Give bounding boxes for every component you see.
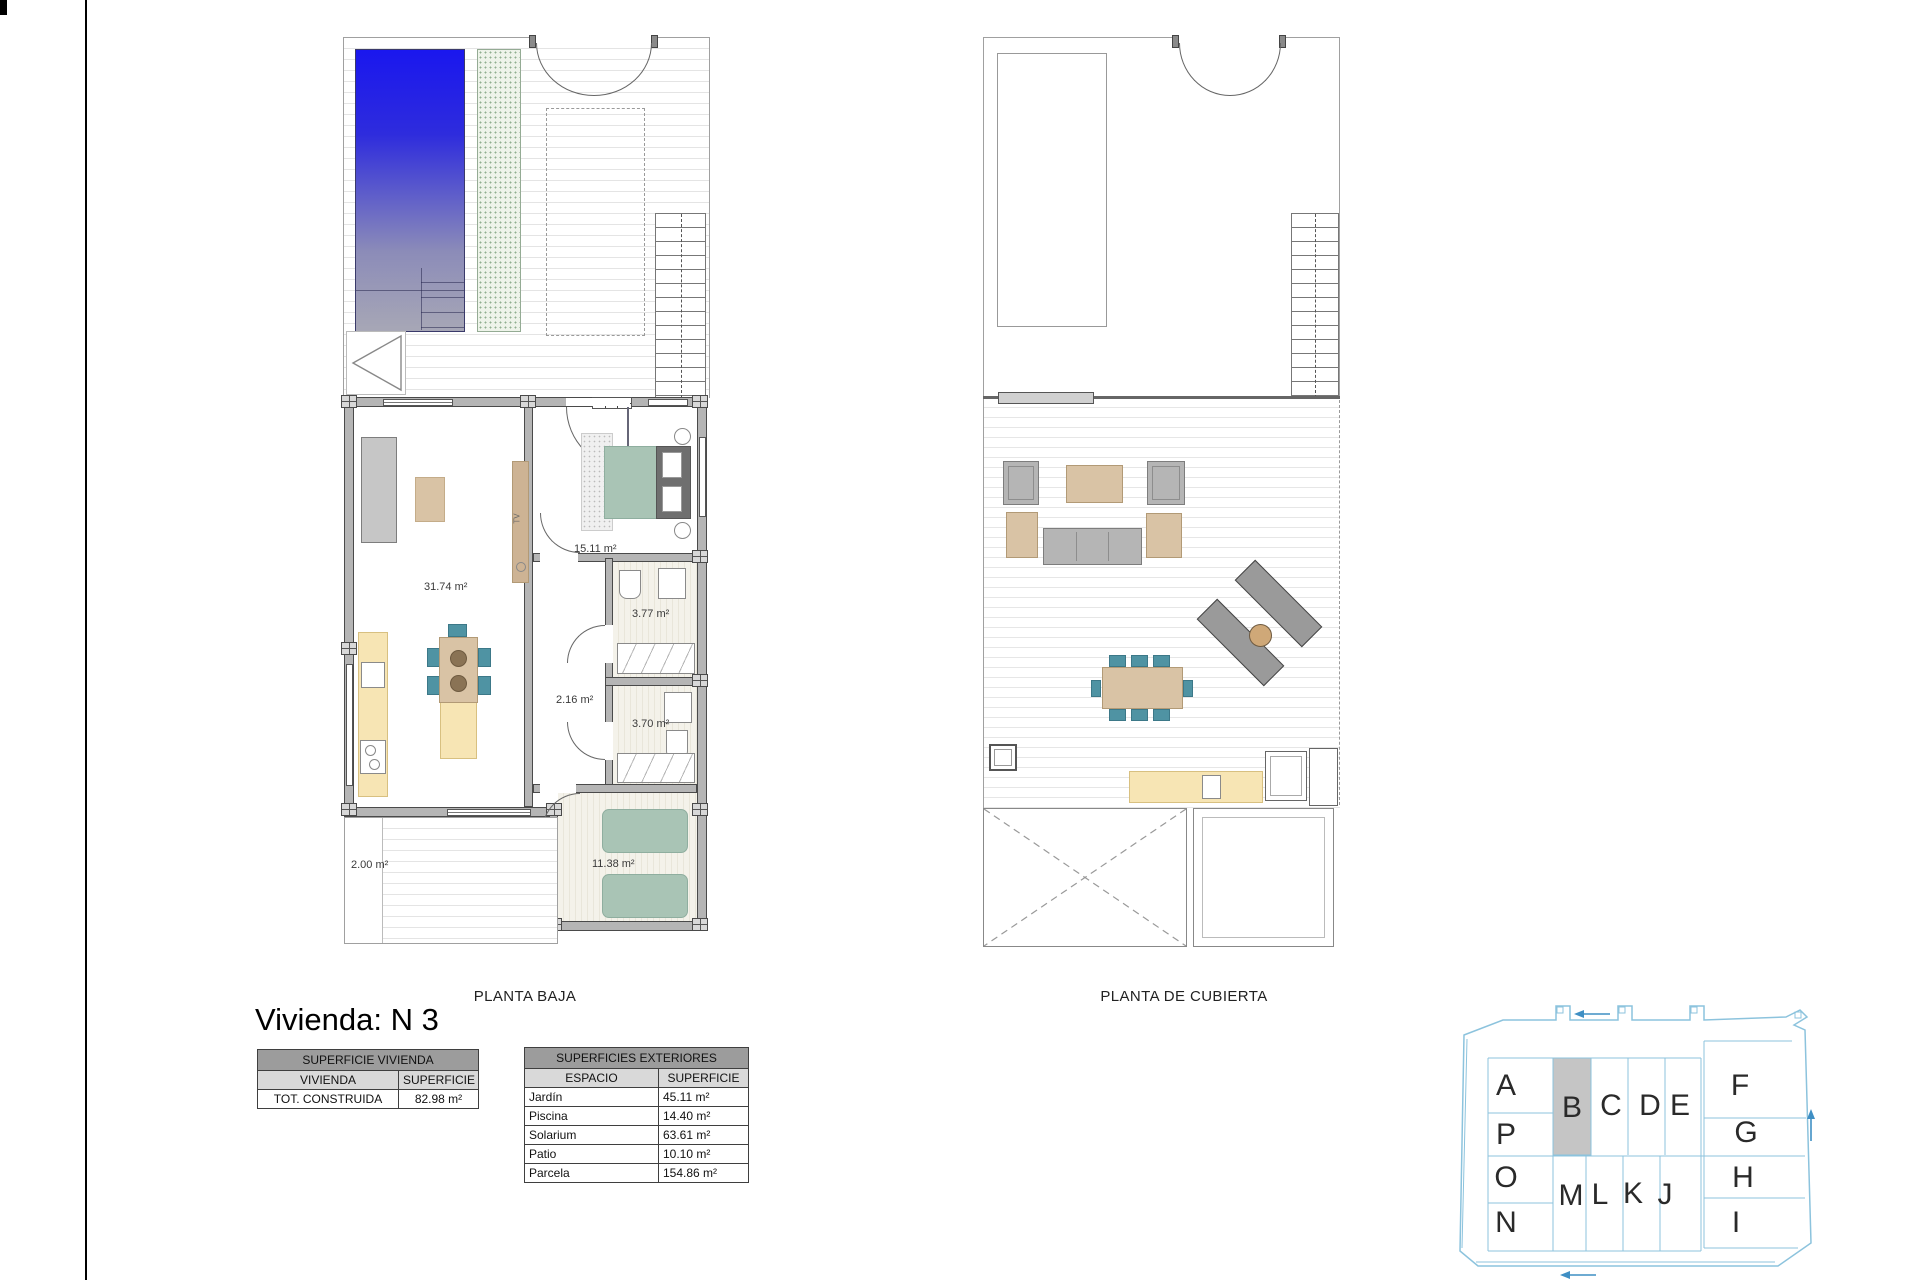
pool-steps bbox=[421, 268, 464, 330]
table-row: Parcela 154.86 m² bbox=[525, 1164, 749, 1183]
wall-post bbox=[692, 550, 708, 563]
wall-post bbox=[341, 395, 357, 408]
terrace-chair bbox=[1091, 680, 1101, 697]
terrace-chair bbox=[1183, 680, 1193, 697]
shower bbox=[617, 753, 695, 783]
unit-letter: G bbox=[1734, 1116, 1757, 1149]
kitchen-stove bbox=[360, 740, 386, 774]
site-grid-lines bbox=[1488, 1041, 1806, 1251]
open-roof-x-icon bbox=[984, 809, 1186, 946]
round-side-table bbox=[1249, 624, 1272, 647]
exterior-row-space: Patio bbox=[525, 1145, 659, 1164]
exterior-row-space: Solarium bbox=[525, 1126, 659, 1145]
window-top-living bbox=[383, 399, 453, 406]
entry-gate-jamb-left bbox=[529, 35, 536, 48]
unit-letter: F bbox=[1731, 1069, 1749, 1102]
table-plate bbox=[450, 650, 467, 667]
roof-staircase bbox=[1291, 213, 1339, 399]
pool bbox=[355, 49, 465, 332]
exterior-table-col-area: SUPERFICIE bbox=[659, 1069, 749, 1088]
unit-letter: L bbox=[1592, 1178, 1609, 1211]
room-label-patio: 2.00 m² bbox=[351, 859, 388, 871]
roof-lower-inner-line bbox=[1202, 817, 1325, 938]
bath-top-door-gap bbox=[605, 625, 613, 663]
unit-letter: H bbox=[1732, 1161, 1754, 1194]
wall-post bbox=[520, 395, 536, 408]
site-tab-mark bbox=[1691, 1007, 1697, 1013]
unit-letter: M bbox=[1559, 1179, 1584, 1212]
unit-letter: A bbox=[1496, 1069, 1516, 1102]
surface-table-title: SUPERFICIE VIVIENDA bbox=[258, 1050, 479, 1071]
entry-door-gap bbox=[566, 398, 630, 406]
bath-bottom-door-gap bbox=[605, 722, 613, 760]
dining-chair bbox=[448, 624, 467, 637]
exterior-row-area: 10.10 m² bbox=[659, 1145, 749, 1164]
sofa-seat-line bbox=[1108, 532, 1109, 561]
wall-post bbox=[692, 395, 708, 408]
window-bottom-living bbox=[447, 809, 531, 816]
bedroom2-door-gap bbox=[540, 784, 576, 793]
wall-post bbox=[692, 918, 708, 931]
window-top-right bbox=[648, 399, 688, 406]
side-table bbox=[1006, 512, 1038, 558]
bedroom2-wall-bottom bbox=[549, 921, 707, 931]
armchair bbox=[1003, 461, 1039, 505]
unit-letter: N bbox=[1495, 1206, 1517, 1239]
kitchen-island bbox=[440, 702, 477, 759]
bulkhead-inner-line bbox=[1270, 756, 1302, 796]
tv-unit: TV bbox=[512, 461, 529, 583]
room-label-bath-top: 3.77 m² bbox=[632, 608, 669, 620]
surface-row-space: TOT. CONSTRUIDA bbox=[258, 1090, 399, 1109]
bed-pillow bbox=[662, 452, 682, 478]
table-row: Solarium 63.61 m² bbox=[525, 1126, 749, 1145]
coffee-table bbox=[1066, 465, 1123, 503]
wall-post bbox=[341, 803, 357, 816]
side-table bbox=[1146, 513, 1182, 558]
bath-sink bbox=[658, 568, 686, 599]
unit-letter: D bbox=[1639, 1089, 1661, 1122]
table-row: TOT. CONSTRUIDA 82.98 m² bbox=[258, 1090, 479, 1109]
room-label-bedroom-second: 11.38 m² bbox=[592, 858, 635, 870]
exterior-row-space: Jardín bbox=[525, 1088, 659, 1107]
patio-deck bbox=[382, 818, 557, 943]
staircase-center-line bbox=[1315, 214, 1316, 398]
table-plate bbox=[450, 675, 467, 692]
staircase-center-line bbox=[681, 214, 682, 398]
site-tab-mark bbox=[1795, 1012, 1801, 1018]
stove-burner bbox=[365, 745, 376, 756]
dining-table bbox=[439, 637, 478, 703]
entry-gate-jamb-right bbox=[651, 35, 658, 48]
wall-post bbox=[692, 674, 708, 687]
unit-letter-highlighted: B bbox=[1562, 1091, 1582, 1124]
window-left-kitchen bbox=[346, 664, 353, 786]
bed-pillow bbox=[662, 486, 682, 512]
bed-main-headboard bbox=[656, 446, 691, 519]
page-title: Vivienda: N 3 bbox=[255, 1002, 439, 1038]
room-label-living: 31.74 m² bbox=[424, 581, 467, 593]
stair-bulkhead bbox=[1265, 751, 1307, 801]
dining-chair bbox=[478, 676, 491, 695]
entry-gate-gap bbox=[529, 33, 657, 39]
room-label-hall: 2.16 m² bbox=[556, 694, 593, 706]
terrace-dining-table bbox=[1102, 667, 1183, 709]
table-row: Patio 10.10 m² bbox=[525, 1145, 749, 1164]
bedroom1-door-gap bbox=[540, 553, 578, 562]
roof-lower-open-box bbox=[983, 808, 1187, 947]
terrace-planter-box bbox=[989, 744, 1017, 771]
ceiling-light-symbol bbox=[674, 428, 691, 445]
roof-plan-caption: PLANTA DE CUBIERTA bbox=[1064, 988, 1304, 1005]
roof-gate-jamb-left bbox=[1172, 35, 1179, 48]
unit-letter: O bbox=[1494, 1161, 1517, 1194]
roof-lower-solid-box bbox=[1193, 808, 1334, 947]
window-right-bedroom1 bbox=[699, 437, 706, 517]
sheet-corner-mark bbox=[0, 0, 7, 15]
single-bed bbox=[602, 874, 688, 918]
exterior-row-area: 45.11 m² bbox=[659, 1088, 749, 1107]
ramp-arrow-icon bbox=[347, 332, 405, 394]
surface-table-col-space: VIVIENDA bbox=[258, 1071, 399, 1090]
terrace-chair bbox=[1109, 655, 1126, 667]
bed-main-duvet bbox=[604, 446, 658, 519]
terrace-top-block bbox=[998, 392, 1094, 404]
wall-post bbox=[341, 642, 357, 655]
sofa bbox=[361, 437, 397, 543]
exterior-table-title: SUPERFICIES EXTERIORES bbox=[525, 1048, 749, 1069]
site-tab-mark bbox=[1619, 1007, 1625, 1013]
bath-bottom-door-arc bbox=[567, 722, 605, 760]
unit-letter: J bbox=[1658, 1178, 1673, 1211]
dining-chair bbox=[478, 648, 491, 667]
unit-letter: K bbox=[1623, 1177, 1643, 1210]
terrace-bar-counter bbox=[1129, 771, 1263, 803]
planter-inner-line bbox=[994, 749, 1012, 766]
exterior-row-space: Piscina bbox=[525, 1107, 659, 1126]
ramp-symbol-box bbox=[346, 331, 406, 395]
roof-gate-gap bbox=[1172, 33, 1286, 39]
roof-side-column bbox=[1309, 748, 1338, 806]
table-row: Jardín 45.11 m² bbox=[525, 1088, 749, 1107]
roof-void-outline bbox=[997, 53, 1107, 327]
unit-letter: P bbox=[1496, 1118, 1516, 1151]
unit-letter: E bbox=[1670, 1089, 1690, 1122]
coffee-rug bbox=[415, 477, 445, 522]
terrace-chair bbox=[1131, 709, 1148, 721]
bath-top-door-arc bbox=[567, 625, 605, 663]
sheet-left-border bbox=[85, 0, 87, 1280]
armchair bbox=[1147, 461, 1185, 505]
garden-staircase bbox=[655, 213, 706, 399]
site-tab-mark bbox=[1557, 1007, 1563, 1013]
unit-letter: I bbox=[1732, 1206, 1740, 1239]
tv-unit-knob bbox=[516, 562, 526, 572]
patio-area bbox=[344, 817, 558, 944]
partition-baths-split bbox=[605, 677, 697, 686]
arrow-bottom-icon bbox=[1560, 1271, 1596, 1279]
ground-floor-caption: PLANTA BAJA bbox=[405, 988, 645, 1005]
kitchen-sink bbox=[361, 662, 385, 688]
site-key-map: A P O N B C D E F G H I M L K J bbox=[1448, 983, 1828, 1280]
plan-sheet: TV bbox=[0, 0, 1920, 1280]
wall-post bbox=[692, 803, 708, 816]
sofa-seat-line bbox=[1076, 532, 1077, 561]
toilet bbox=[619, 570, 641, 599]
unit-letter: C bbox=[1600, 1089, 1622, 1122]
north-arrow-top-icon bbox=[1574, 1010, 1610, 1018]
terrace-chair bbox=[1109, 709, 1126, 721]
room-label-bedroom-main: 15.11 m² bbox=[574, 543, 617, 555]
exterior-surfaces-table: SUPERFICIES EXTERIORES ESPACIO SUPERFICI… bbox=[524, 1047, 749, 1183]
outdoor-sofa bbox=[1043, 528, 1142, 565]
terrace-chair bbox=[1131, 655, 1148, 667]
exterior-row-area: 14.40 m² bbox=[659, 1107, 749, 1126]
surface-row-area: 82.98 m² bbox=[399, 1090, 479, 1109]
vegetation-strip bbox=[477, 49, 521, 332]
surface-vivienda-table: SUPERFICIE VIVIENDA VIVIENDA SUPERFICIE … bbox=[257, 1049, 479, 1109]
stove-burner bbox=[369, 759, 380, 770]
table-row: Piscina 14.40 m² bbox=[525, 1107, 749, 1126]
shower bbox=[617, 643, 695, 674]
parking-dashed-outline bbox=[546, 108, 645, 336]
exterior-row-area: 154.86 m² bbox=[659, 1164, 749, 1183]
armchair-cushion bbox=[1008, 466, 1034, 500]
terrace-right-dashed-edge bbox=[1339, 400, 1340, 805]
tv-label: TV bbox=[513, 513, 522, 523]
exterior-row-space: Parcela bbox=[525, 1164, 659, 1183]
armchair-cushion bbox=[1152, 466, 1180, 500]
single-bed bbox=[602, 809, 688, 853]
surface-table-col-area: SUPERFICIE bbox=[399, 1071, 479, 1090]
terrace-chair bbox=[1153, 655, 1170, 667]
room-label-bath-bottom: 3.70 m² bbox=[632, 718, 669, 730]
ceiling-light-symbol bbox=[674, 522, 691, 539]
bar-sink bbox=[1202, 775, 1221, 799]
exterior-table-col-space: ESPACIO bbox=[525, 1069, 659, 1088]
exterior-row-area: 63.61 m² bbox=[659, 1126, 749, 1145]
terrace-chair bbox=[1153, 709, 1170, 721]
